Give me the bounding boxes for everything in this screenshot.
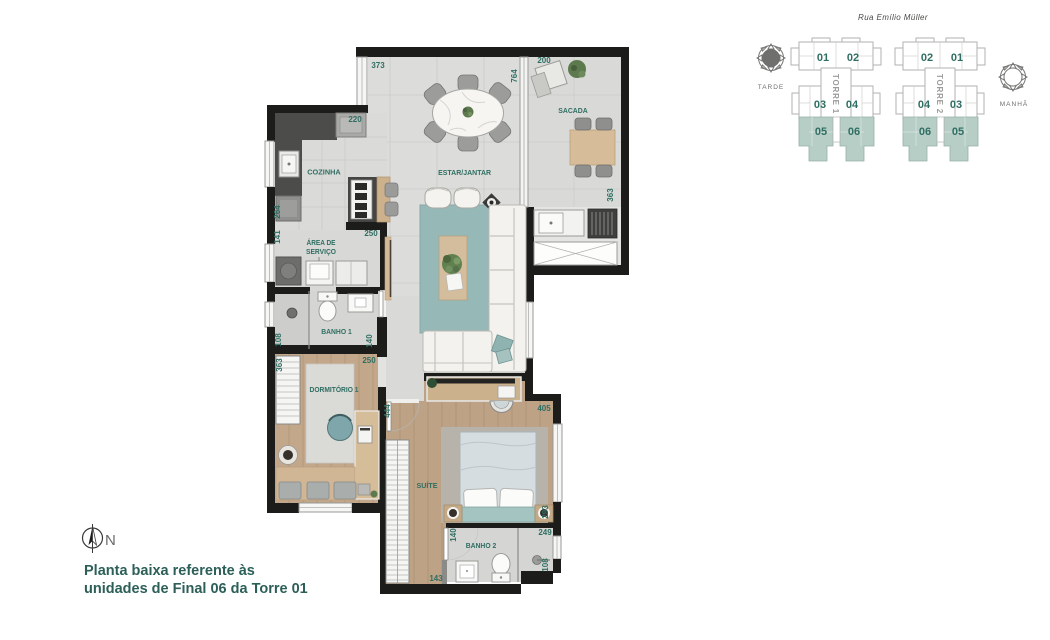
- svg-text:220: 220: [348, 115, 362, 124]
- svg-text:TORRE 1: TORRE 1: [831, 74, 840, 114]
- svg-text:108: 108: [541, 558, 550, 572]
- svg-text:03: 03: [814, 99, 826, 111]
- svg-text:140: 140: [449, 528, 458, 542]
- svg-text:SACADA: SACADA: [558, 106, 588, 115]
- svg-text:293: 293: [541, 505, 550, 519]
- svg-text:Planta baixa referente às: Planta baixa referente às: [84, 563, 255, 579]
- svg-text:ÁREA DE: ÁREA DE: [307, 238, 336, 247]
- svg-text:02: 02: [847, 52, 859, 64]
- svg-text:TORRE 2: TORRE 2: [935, 74, 944, 114]
- svg-text:03: 03: [950, 99, 962, 111]
- svg-text:N: N: [105, 532, 116, 549]
- svg-text:444: 444: [383, 404, 392, 418]
- svg-text:DORMITÓRIO 1: DORMITÓRIO 1: [310, 385, 359, 394]
- svg-text:unidades de Final 06 da Torre: unidades de Final 06 da Torre 01: [84, 581, 308, 597]
- svg-text:COZINHA: COZINHA: [307, 168, 341, 177]
- svg-text:05: 05: [952, 126, 964, 138]
- svg-text:05: 05: [815, 126, 827, 138]
- svg-text:ESTAR/JANTAR: ESTAR/JANTAR: [438, 168, 491, 177]
- svg-text:764: 764: [510, 69, 519, 83]
- svg-text:264: 264: [273, 205, 282, 219]
- svg-text:06: 06: [919, 126, 931, 138]
- svg-text:MANHÃ: MANHÃ: [1000, 99, 1028, 108]
- svg-text:140: 140: [365, 334, 374, 348]
- svg-text:TARDE: TARDE: [758, 84, 785, 91]
- svg-text:250: 250: [362, 356, 376, 365]
- svg-text:249: 249: [538, 528, 552, 537]
- svg-text:Rua Emílio Müller: Rua Emílio Müller: [858, 13, 928, 22]
- svg-text:373: 373: [371, 61, 385, 70]
- svg-text:06: 06: [848, 126, 860, 138]
- svg-text:250: 250: [364, 229, 378, 238]
- svg-text:BANHO 1: BANHO 1: [321, 327, 352, 336]
- svg-text:04: 04: [918, 99, 931, 111]
- svg-text:01: 01: [951, 52, 963, 64]
- svg-text:SERVIÇO: SERVIÇO: [306, 249, 337, 256]
- svg-text:04: 04: [846, 99, 859, 111]
- svg-text:BANHO 2: BANHO 2: [466, 541, 497, 550]
- svg-text:141: 141: [273, 230, 282, 244]
- svg-text:02: 02: [921, 52, 933, 64]
- svg-text:SUÍTE: SUÍTE: [417, 481, 438, 490]
- svg-text:200: 200: [537, 56, 551, 65]
- svg-text:108: 108: [274, 333, 283, 347]
- svg-text:363: 363: [275, 358, 284, 372]
- svg-text:143: 143: [429, 574, 443, 583]
- svg-text:405: 405: [537, 404, 551, 413]
- svg-text:01: 01: [817, 52, 829, 64]
- svg-text:363: 363: [606, 188, 615, 202]
